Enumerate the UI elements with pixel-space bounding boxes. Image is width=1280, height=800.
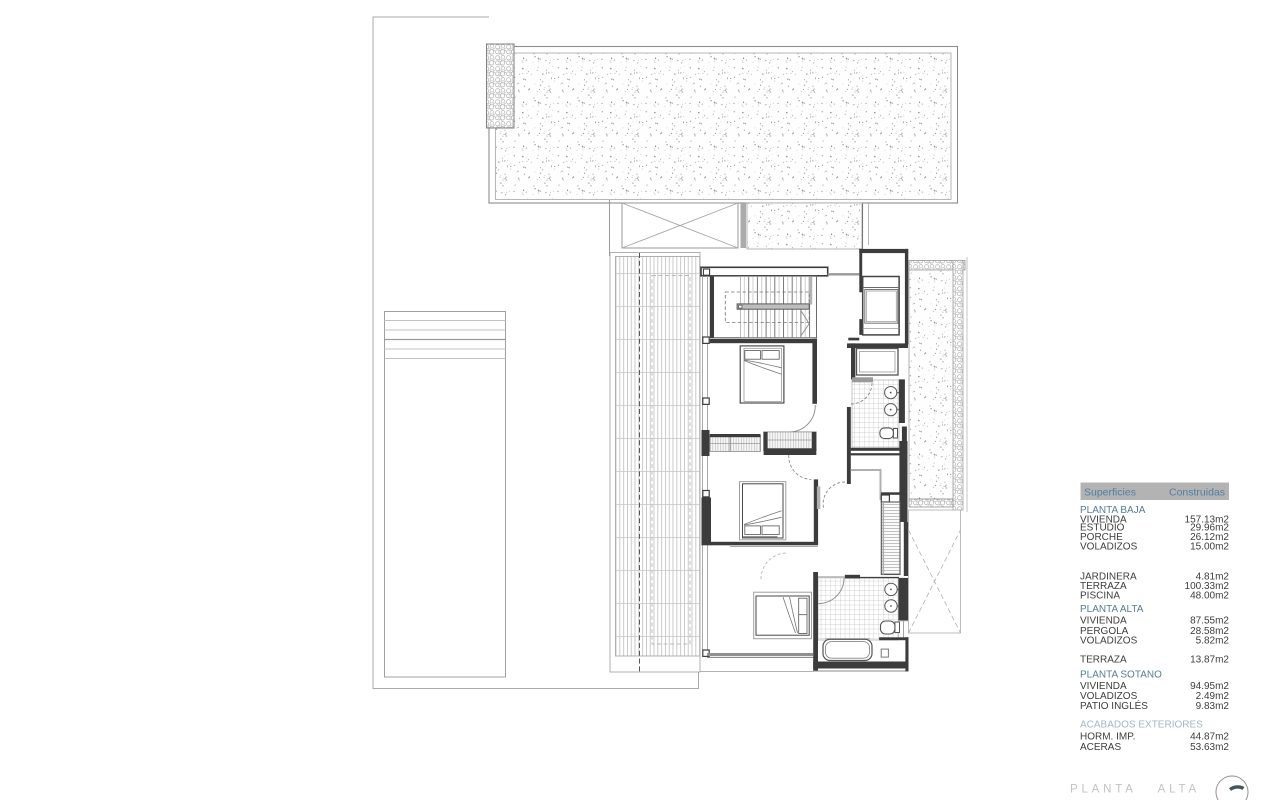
svg-text:VOLADIZOS: VOLADIZOS <box>1080 542 1138 553</box>
svg-text:PLANTA SOTANO: PLANTA SOTANO <box>1080 670 1162 681</box>
svg-text:TERRAZA: TERRAZA <box>1080 655 1127 666</box>
svg-text:44.87m2: 44.87m2 <box>1190 732 1229 743</box>
svg-text:HORM. IMP.: HORM. IMP. <box>1080 732 1135 743</box>
svg-text:13.87m2: 13.87m2 <box>1190 655 1229 666</box>
svg-text:5.82m2: 5.82m2 <box>1196 636 1230 647</box>
svg-text:15.00m2: 15.00m2 <box>1190 542 1229 553</box>
svg-text:PLANTA ALTA: PLANTA ALTA <box>1080 604 1144 615</box>
svg-text:VOLADIZOS: VOLADIZOS <box>1080 636 1138 647</box>
svg-text:VIVIENDA: VIVIENDA <box>1080 616 1127 627</box>
svg-text:87.55m2: 87.55m2 <box>1190 616 1229 627</box>
svg-text:ACABADOS EXTERIORES: ACABADOS EXTERIORES <box>1080 720 1203 731</box>
svg-text:53.63m2: 53.63m2 <box>1190 742 1229 753</box>
svg-text:ACERAS: ACERAS <box>1080 742 1121 753</box>
svg-text:PLANTA ALTA: PLANTA ALTA <box>1070 784 1200 796</box>
svg-text:PISCINA: PISCINA <box>1080 591 1120 602</box>
svg-text:48.00m2: 48.00m2 <box>1190 591 1229 602</box>
svg-text:9.83m2: 9.83m2 <box>1196 701 1230 712</box>
svg-text:Construidas: Construidas <box>1169 487 1225 499</box>
svg-text:PATIO INGLÉS: PATIO INGLÉS <box>1080 699 1148 712</box>
svg-text:Superficies: Superficies <box>1084 487 1136 499</box>
